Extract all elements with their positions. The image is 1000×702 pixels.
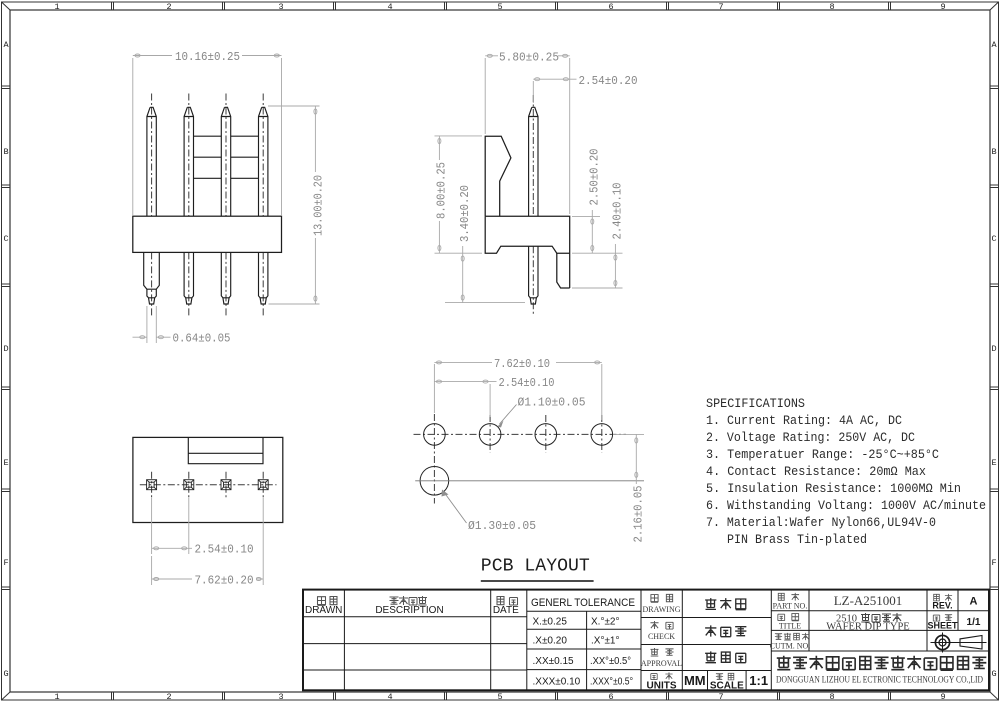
svg-text:3: 3	[278, 2, 283, 12]
svg-text:D: D	[3, 344, 8, 354]
svg-text:.XX°±0.5°: .XX°±0.5°	[590, 656, 631, 667]
svg-text:.X°±1°: .X°±1°	[591, 636, 620, 647]
svg-text:6. Withstanding Voltang: 1000V: 6. Withstanding Voltang: 1000V AC/minute	[706, 499, 986, 513]
svg-text:1:1: 1:1	[749, 673, 768, 688]
svg-text:B: B	[991, 147, 996, 157]
svg-text:UNITS: UNITS	[647, 681, 677, 692]
svg-text:1/1: 1/1	[967, 617, 981, 628]
svg-text:A: A	[991, 40, 997, 50]
svg-text:SPECIFICATIONS: SPECIFICATIONS	[706, 397, 805, 411]
svg-text:1: 1	[54, 2, 59, 12]
svg-text:B: B	[3, 147, 8, 157]
svg-text:X.±0.25: X.±0.25	[533, 617, 568, 628]
svg-text:3: 3	[278, 692, 283, 702]
svg-text:DESCRIPTION: DESCRIPTION	[375, 605, 443, 616]
svg-text:2. Voltage Rating: 250V AC, DC: 2. Voltage Rating: 250V AC, DC	[706, 431, 915, 445]
svg-text:F: F	[3, 558, 8, 568]
svg-text:D: D	[991, 344, 996, 354]
svg-text:GENERL TOLERANCE: GENERL TOLERANCE	[531, 597, 635, 609]
svg-text:PCB LAYOUT: PCB LAYOUT	[481, 556, 590, 577]
svg-text:2.54±0.20: 2.54±0.20	[579, 74, 638, 88]
svg-text:7: 7	[718, 692, 723, 702]
svg-text:G: G	[991, 669, 996, 679]
svg-text:6: 6	[608, 692, 613, 702]
svg-text:TITLE: TITLE	[779, 622, 801, 631]
svg-text:0.64±0.05: 0.64±0.05	[173, 332, 231, 346]
svg-text:4: 4	[387, 692, 392, 702]
svg-text:8.00±0.25: 8.00±0.25	[435, 162, 449, 219]
svg-text:WAFER DIP TYPE: WAFER DIP TYPE	[826, 622, 909, 633]
svg-text:.XXX±0.10: .XXX±0.10	[533, 676, 581, 687]
svg-text:PIN Brass Tin-plated: PIN Brass Tin-plated	[727, 533, 867, 547]
svg-text:A: A	[970, 596, 978, 608]
svg-text:DRAWN: DRAWN	[305, 605, 342, 616]
svg-text:SHEET: SHEET	[927, 621, 958, 631]
svg-text:5. Insulation Resistance: 1000: 5. Insulation Resistance: 1000MΩ Min	[706, 482, 961, 496]
svg-text:5: 5	[497, 2, 502, 12]
svg-text:9: 9	[940, 2, 945, 12]
svg-text:2.40±0.10: 2.40±0.10	[611, 183, 625, 240]
svg-text:13.00±0.20: 13.00±0.20	[312, 175, 326, 236]
svg-text:APPROVAL: APPROVAL	[641, 659, 682, 668]
svg-text:G: G	[3, 669, 8, 679]
svg-text:E: E	[3, 458, 8, 468]
svg-text:MM: MM	[684, 673, 706, 688]
svg-text:DATE: DATE	[493, 605, 519, 616]
svg-text:REV.: REV.	[932, 601, 952, 611]
svg-text:.X±0.20: .X±0.20	[533, 636, 568, 647]
svg-text:E: E	[991, 458, 996, 468]
svg-text:LZ-A251001: LZ-A251001	[834, 593, 903, 608]
svg-text:3. Temperatuer Range: -25°C~+8: 3. Temperatuer Range: -25°C~+85°C	[706, 448, 939, 462]
svg-text:4. Contact Resistance: 20mΩ Ma: 4. Contact Resistance: 20mΩ Max	[706, 465, 926, 479]
svg-text:C: C	[3, 234, 8, 244]
svg-text:.XXX°±0.5°: .XXX°±0.5°	[590, 676, 633, 687]
svg-text:5.80±0.25: 5.80±0.25	[499, 51, 559, 65]
svg-text:X.°±2°: X.°±2°	[591, 617, 620, 628]
svg-text:7. Material:Wafer Nylon66,UL94: 7. Material:Wafer Nylon66,UL94V-0	[706, 516, 936, 530]
svg-text:8: 8	[829, 692, 834, 702]
svg-text:C: C	[991, 234, 996, 244]
svg-text:2: 2	[166, 692, 171, 702]
svg-text:9: 9	[940, 692, 945, 702]
svg-text:CHECK: CHECK	[648, 632, 675, 641]
svg-text:10.16±0.25: 10.16±0.25	[175, 50, 240, 64]
svg-text:8: 8	[829, 2, 834, 12]
svg-text:.XX±0.15: .XX±0.15	[533, 656, 575, 667]
svg-text:SCALE: SCALE	[710, 681, 744, 692]
svg-text:4: 4	[387, 2, 392, 12]
svg-text:6: 6	[608, 2, 613, 12]
svg-text:2: 2	[166, 2, 171, 12]
svg-text:CUTM. NO.: CUTM. NO.	[770, 642, 811, 651]
svg-text:DRAWING: DRAWING	[642, 605, 680, 614]
svg-text:2.50±0.20: 2.50±0.20	[587, 149, 601, 206]
svg-text:7.62±0.10: 7.62±0.10	[494, 357, 550, 371]
svg-text:A: A	[3, 40, 9, 50]
svg-text:DONGGUAN LIZHOU EL ECTRONIC TE: DONGGUAN LIZHOU EL ECTRONIC TECHNOLOGY C…	[776, 676, 983, 686]
svg-text:1: 1	[54, 692, 59, 702]
svg-text:7.62±0.20: 7.62±0.20	[195, 573, 254, 587]
svg-text:1. Current Rating: 4A AC, DC: 1. Current Rating: 4A AC, DC	[706, 414, 902, 428]
svg-text:5: 5	[497, 692, 502, 702]
svg-text:Ø1.30±0.05: Ø1.30±0.05	[468, 519, 536, 533]
svg-text:2.54±0.10: 2.54±0.10	[195, 543, 254, 557]
svg-text:2.16±0.05: 2.16±0.05	[631, 486, 645, 543]
svg-text:2.54±0.10: 2.54±0.10	[499, 376, 555, 390]
svg-text:PART NO.: PART NO.	[773, 602, 808, 611]
svg-text:3.40±0.20: 3.40±0.20	[458, 185, 472, 242]
svg-text:7: 7	[718, 2, 723, 12]
svg-text:F: F	[991, 558, 996, 568]
svg-text:Ø1.10±0.05: Ø1.10±0.05	[518, 396, 586, 410]
